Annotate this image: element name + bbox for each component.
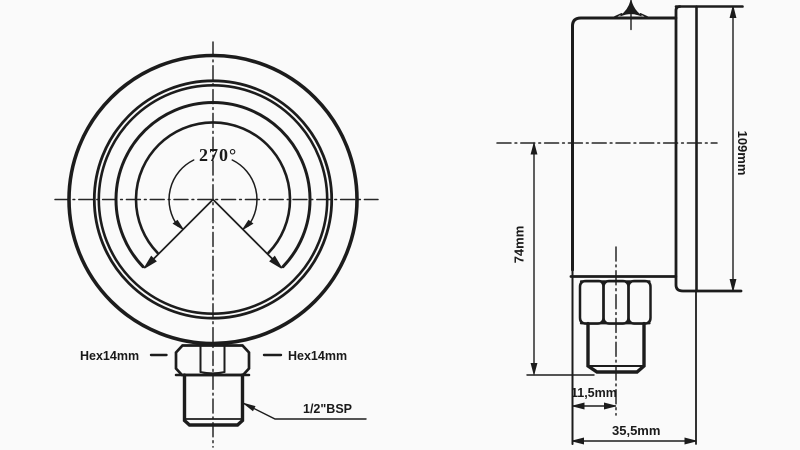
svg-text:Hex14mm: Hex14mm: [80, 349, 139, 363]
svg-text:Hex14mm: Hex14mm: [288, 349, 347, 363]
svg-text:74mm: 74mm: [512, 226, 527, 264]
svg-text:35,5mm: 35,5mm: [612, 423, 660, 438]
svg-text:11,5mm: 11,5mm: [571, 386, 617, 400]
svg-text:1/2"BSP: 1/2"BSP: [303, 402, 352, 416]
svg-text:270°: 270°: [199, 145, 237, 165]
svg-text:109mm: 109mm: [735, 131, 750, 176]
